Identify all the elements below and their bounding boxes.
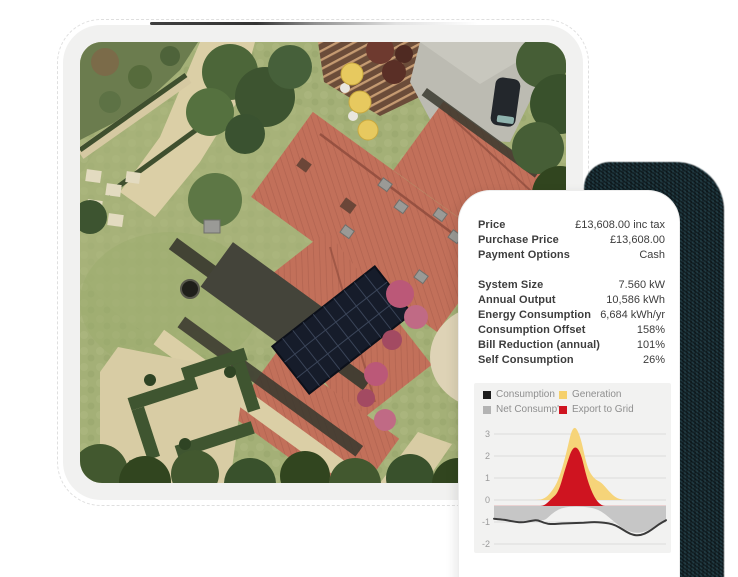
legend-label: Generation <box>572 389 621 401</box>
spec-row: Energy Consumption6,684 kWh/yr <box>478 307 665 322</box>
legend-label: Consumption <box>496 389 555 401</box>
spec-row: Price£13,608.00 inc tax <box>478 217 665 232</box>
spec-row: Payment OptionsCash <box>478 247 665 262</box>
card-top-shadow <box>150 22 560 25</box>
pricing-specs: Price£13,608.00 inc taxPurchase Price£13… <box>459 191 679 367</box>
spec-row: System Size7.560 kW <box>478 277 665 292</box>
spec-label: Annual Output <box>478 294 556 306</box>
spec-label: Bill Reduction (annual) <box>478 339 600 351</box>
spec-row: Annual Output10,586 kWh <box>478 292 665 307</box>
svg-text:1: 1 <box>485 473 490 483</box>
chart-legend: ConsumptionGenerationNet Consump'nExport… <box>483 389 671 416</box>
spec-label: Energy Consumption <box>478 309 591 321</box>
daily-energy-chart: ConsumptionGenerationNet Consump'nExport… <box>474 383 671 553</box>
page: Price£13,608.00 inc taxPurchase Price£13… <box>0 0 738 577</box>
spec-value: 158% <box>637 324 665 336</box>
spec-label: Consumption Offset <box>478 324 586 336</box>
legend-item: Consumption <box>483 389 559 401</box>
spec-label: Payment Options <box>478 249 570 261</box>
legend-swatch-export-to-grid <box>559 406 567 414</box>
spec-label: System Size <box>478 279 543 291</box>
legend-label: Export to Grid <box>572 404 634 416</box>
svg-text:-1: -1 <box>482 517 490 527</box>
spec-group: Price£13,608.00 inc taxPurchase Price£13… <box>478 217 665 262</box>
legend-swatch-consumption <box>483 391 491 399</box>
quote-panel: Price£13,608.00 inc taxPurchase Price£13… <box>458 190 680 577</box>
spec-value: 7.560 kW <box>619 279 665 291</box>
svg-text:2: 2 <box>485 451 490 461</box>
chart-plot: 3210-1-2 <box>474 417 671 553</box>
spec-value: 101% <box>637 339 665 351</box>
svg-text:0: 0 <box>485 495 490 505</box>
svg-text:3: 3 <box>485 429 490 439</box>
spec-group: System Size7.560 kWAnnual Output10,586 k… <box>478 277 665 367</box>
legend-swatch-net-consump-n <box>483 406 491 414</box>
spec-label: Purchase Price <box>478 234 559 246</box>
spec-value: Cash <box>639 249 665 261</box>
spec-value: £13,608.00 inc tax <box>575 219 665 231</box>
spec-value: £13,608.00 <box>610 234 665 246</box>
svg-text:-2: -2 <box>482 539 490 549</box>
legend-item: Generation <box>559 389 671 401</box>
spec-row: Bill Reduction (annual)101% <box>478 337 665 352</box>
spec-label: Self Consumption <box>478 354 574 366</box>
spec-row: Self Consumption26% <box>478 352 665 367</box>
spec-value: 6,684 kWh/yr <box>600 309 665 321</box>
legend-swatch-generation <box>559 391 567 399</box>
spec-row: Consumption Offset158% <box>478 322 665 337</box>
spec-value: 10,586 kWh <box>606 294 665 306</box>
spec-label: Price <box>478 219 505 231</box>
spec-row: Purchase Price£13,608.00 <box>478 232 665 247</box>
legend-item: Net Consump'n <box>483 404 559 416</box>
legend-item: Export to Grid <box>559 404 671 416</box>
legend-label: Net Consump'n <box>496 404 565 416</box>
spec-value: 26% <box>643 354 665 366</box>
